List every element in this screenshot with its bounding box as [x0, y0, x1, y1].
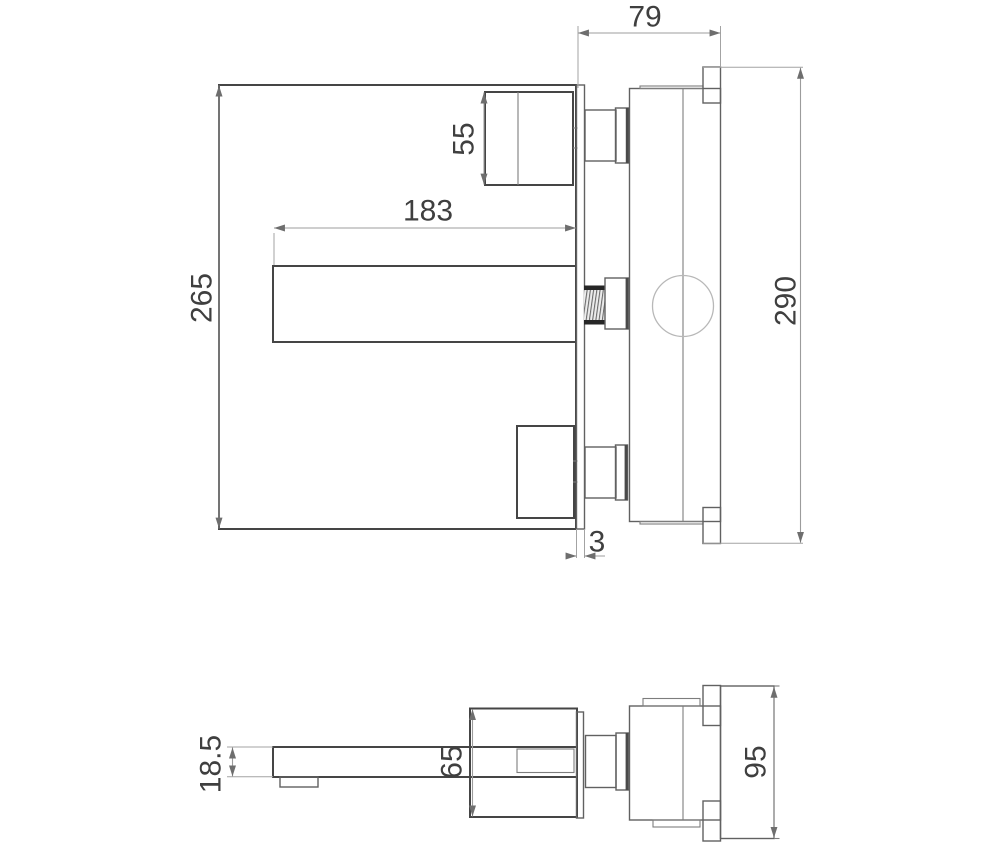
dim-trim-label: 95 — [740, 745, 773, 778]
top-handle-front — [485, 92, 573, 185]
dim-escutcheon-label: 65 — [436, 745, 469, 778]
dim-thickness-label: 3 — [589, 526, 606, 559]
dim-spout-height-label: 18.5 — [195, 735, 228, 793]
spout-thread-top-band — [584, 286, 605, 291]
mounting-ear-top — [703, 67, 721, 103]
spout-aerator — [280, 777, 318, 787]
dim-handle-label: 55 — [448, 122, 481, 155]
bottom-handle-stem — [585, 447, 616, 498]
wall-plate-side — [577, 85, 585, 529]
bottom-view: 18.5 65 95 — [195, 686, 780, 842]
body-bottom-flange — [640, 522, 703, 525]
mounting-ear-bottom — [703, 508, 721, 544]
spout-thread-hatch — [584, 287, 605, 324]
spout-thread-bottom-band — [584, 320, 605, 325]
faucet-dimension-drawing: 79 55 183 265 290 3 — [0, 0, 1000, 846]
dim-plate-height-label: 265 — [186, 273, 219, 323]
escutcheon-bottom-view — [470, 709, 577, 818]
dim-spout-label: 183 — [403, 195, 453, 228]
body-flange-bottom-bottom-view — [653, 820, 700, 827]
dim-body-height-label: 290 — [770, 276, 803, 326]
escutcheon-inner-detail — [517, 749, 574, 773]
spout-connector-cap — [605, 278, 629, 329]
bottom-handle-front — [517, 426, 574, 518]
valve-body-side — [630, 89, 721, 522]
valve-body-bottom-view — [630, 706, 721, 820]
spout-front — [273, 266, 576, 342]
front-side-view: 79 55 183 265 290 3 — [186, 1, 804, 559]
top-handle-stem — [585, 110, 616, 161]
stem-bottom-view — [586, 736, 617, 788]
ear-bottom-bottom-view — [703, 801, 721, 841]
body-flange-top-bottom-view — [643, 699, 700, 707]
technical-drawing-page: 79 55 183 265 290 3 — [0, 0, 1000, 846]
dim-depth-label: 79 — [628, 1, 661, 34]
body-top-flange — [640, 86, 703, 89]
